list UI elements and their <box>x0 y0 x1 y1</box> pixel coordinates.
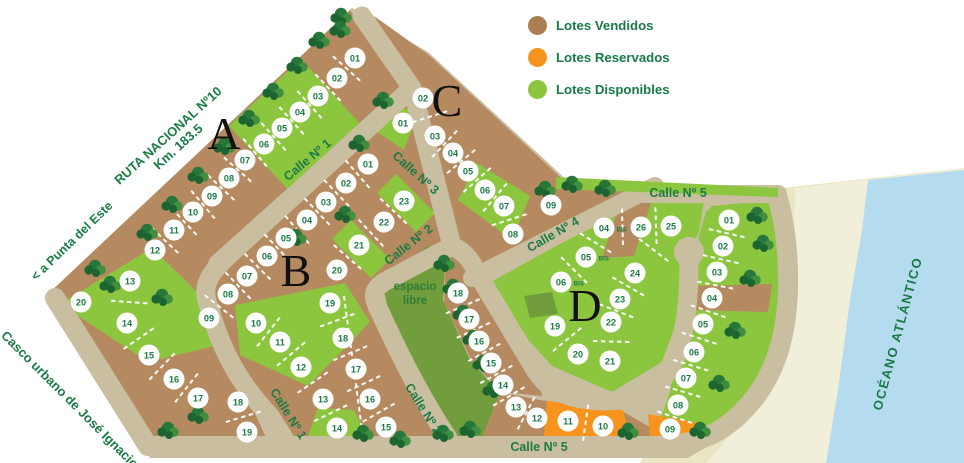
lot-c01[interactable]: 01 <box>393 113 414 134</box>
svg-text:09: 09 <box>665 424 675 434</box>
svg-text:05: 05 <box>277 123 287 133</box>
lot-a10[interactable]: 10 <box>183 202 204 223</box>
svg-text:09: 09 <box>207 191 217 201</box>
svg-text:06: 06 <box>480 185 490 195</box>
svg-text:05: 05 <box>581 252 591 262</box>
lot-do10[interactable]: 10 <box>593 416 614 437</box>
svg-text:11: 11 <box>563 416 573 426</box>
lot-c04[interactable]: 04 <box>443 143 464 164</box>
svg-text:06: 06 <box>689 347 699 357</box>
section-label-C: C <box>432 75 463 126</box>
svg-text:17: 17 <box>351 364 361 374</box>
lot-a14[interactable]: 14 <box>117 313 138 334</box>
svg-text:03: 03 <box>313 91 323 101</box>
lot-d19[interactable]: 19 <box>545 316 566 337</box>
svg-text:26: 26 <box>636 222 646 232</box>
svg-text:17: 17 <box>464 314 474 324</box>
svg-text:03: 03 <box>712 267 722 277</box>
lot-b17[interactable]: 17 <box>346 359 367 380</box>
lot-ds17[interactable]: 17 <box>459 309 480 330</box>
lot-c05[interactable]: 05 <box>458 161 479 182</box>
reservados-color-swatch <box>528 48 547 67</box>
svg-text:06: 06 <box>259 139 269 149</box>
lot-c07[interactable]: 07 <box>494 196 515 217</box>
svg-text:21: 21 <box>605 356 615 366</box>
svg-text:04: 04 <box>707 293 718 303</box>
lot-a18[interactable]: 18 <box>228 392 249 413</box>
svg-text:07: 07 <box>242 271 252 281</box>
espacio-libre-label: espacio <box>394 281 437 293</box>
lot-dr07[interactable]: 07 <box>676 368 697 389</box>
disponibles-color-swatch <box>528 80 547 99</box>
svg-text:01: 01 <box>350 53 360 63</box>
svg-text:12: 12 <box>532 413 542 423</box>
lot-ds18[interactable]: 18 <box>448 283 469 304</box>
svg-text:15: 15 <box>486 358 496 368</box>
svg-text:23: 23 <box>399 196 409 206</box>
lot-ds16[interactable]: 16 <box>469 331 490 352</box>
lot-d25[interactable]: 25 <box>661 216 682 237</box>
svg-text:02: 02 <box>718 241 728 251</box>
svg-text:01: 01 <box>724 215 734 225</box>
legend-item-disponibles: Lotes Disponibles <box>528 80 670 99</box>
lot-ds14[interactable]: 14 <box>493 375 514 396</box>
svg-text:17: 17 <box>193 393 203 403</box>
lot-d21[interactable]: 21 <box>600 351 621 372</box>
svg-text:18: 18 <box>453 288 463 298</box>
lot-dr02[interactable]: 02 <box>713 236 734 257</box>
svg-text:03: 03 <box>321 197 331 207</box>
lot-dr03[interactable]: 03 <box>707 262 728 283</box>
svg-text:04: 04 <box>599 223 610 233</box>
svg-text:02: 02 <box>418 93 428 103</box>
svg-text:05: 05 <box>281 233 291 243</box>
bis-suffix: BIS <box>599 256 609 263</box>
lot-ds15[interactable]: 15 <box>481 353 502 374</box>
svg-text:18: 18 <box>233 397 243 407</box>
svg-text:07: 07 <box>681 373 691 383</box>
lot-a08[interactable]: 08 <box>219 168 240 189</box>
svg-text:16: 16 <box>365 394 375 404</box>
lot-d22[interactable]: 22 <box>601 312 622 333</box>
lot-b11[interactable]: 11 <box>270 332 291 353</box>
svg-text:19: 19 <box>550 321 560 331</box>
lot-a03[interactable]: 03 <box>308 86 329 107</box>
lot-dr04[interactable]: 04 <box>702 288 723 309</box>
lot-a11[interactable]: 11 <box>164 220 185 241</box>
lot-c02[interactable]: 02 <box>413 88 434 109</box>
lot-d24[interactable]: 24 <box>625 263 646 284</box>
vendidos-label: Lotes Vendidos <box>556 18 653 33</box>
svg-text:25: 25 <box>666 221 676 231</box>
section-label-D: D <box>568 280 601 331</box>
lot-a05[interactable]: 05 <box>272 118 293 139</box>
svg-text:08: 08 <box>508 229 518 239</box>
lot-a17[interactable]: 17 <box>188 388 209 409</box>
reservados-label: Lotes Reservados <box>556 50 670 65</box>
svg-text:20: 20 <box>332 265 342 275</box>
espacio-libre-label: libre <box>403 295 427 307</box>
lot-b14[interactable]: 14 <box>327 418 348 439</box>
lot-b18[interactable]: 18 <box>333 328 354 349</box>
lot-b12[interactable]: 12 <box>291 357 312 378</box>
svg-text:12: 12 <box>150 245 160 255</box>
lot-d26[interactable]: 26 <box>631 217 652 238</box>
cul-de-sac <box>674 237 704 267</box>
svg-text:10: 10 <box>598 421 608 431</box>
lot-dr01[interactable]: 01 <box>719 210 740 231</box>
lot-b21[interactable]: 21 <box>349 235 370 256</box>
lot-a15[interactable]: 15 <box>139 345 160 366</box>
svg-text:20: 20 <box>76 297 86 307</box>
lot-ds12[interactable]: 12 <box>527 408 548 429</box>
lot-c06[interactable]: 06 <box>475 180 496 201</box>
svg-text:01: 01 <box>398 118 408 128</box>
svg-text:19: 19 <box>325 298 335 308</box>
svg-text:06: 06 <box>556 277 566 287</box>
svg-text:13: 13 <box>318 394 328 404</box>
section-label-B: B <box>281 245 312 296</box>
lot-a06[interactable]: 06 <box>254 134 275 155</box>
svg-text:01: 01 <box>363 159 373 169</box>
svg-text:07: 07 <box>499 201 509 211</box>
lot-c08[interactable]: 08 <box>503 224 524 245</box>
svg-text:08: 08 <box>224 173 234 183</box>
lot-a19[interactable]: 19 <box>237 422 258 443</box>
lot-b10[interactable]: 10 <box>246 313 267 334</box>
block-d-olive-square <box>524 292 558 318</box>
svg-text:09: 09 <box>204 313 214 323</box>
svg-text:04: 04 <box>295 107 306 117</box>
lot-d23[interactable]: 23 <box>610 289 631 310</box>
lot-b06[interactable]: 06 <box>257 246 278 267</box>
legend: Lotes Vendidos Lotes Reservados Lotes Di… <box>528 16 670 112</box>
lot-b16[interactable]: 16 <box>360 389 381 410</box>
svg-text:08: 08 <box>673 400 683 410</box>
svg-text:06: 06 <box>262 251 272 261</box>
lot-c03[interactable]: 03 <box>425 126 446 147</box>
svg-text:22: 22 <box>606 317 616 327</box>
svg-text:19: 19 <box>242 427 252 437</box>
lot-b23[interactable]: 23 <box>394 191 415 212</box>
svg-text:10: 10 <box>251 318 261 328</box>
svg-text:15: 15 <box>144 350 154 360</box>
svg-text:18: 18 <box>338 333 348 343</box>
svg-text:02: 02 <box>341 178 351 188</box>
lot-a09[interactable]: 09 <box>202 186 223 207</box>
street-label: Calle Nº 5 <box>510 440 567 454</box>
svg-text:16: 16 <box>474 336 484 346</box>
lot-a20[interactable]: 20 <box>71 292 92 313</box>
lot-b04[interactable]: 04 <box>297 210 318 231</box>
lot-b22[interactable]: 22 <box>374 212 395 233</box>
svg-text:02: 02 <box>332 73 342 83</box>
svg-text:09: 09 <box>546 200 556 210</box>
legend-item-vendidos: Lotes Vendidos <box>528 16 670 35</box>
lot-dr09[interactable]: 09 <box>660 419 681 440</box>
lot-d20[interactable]: 20 <box>568 344 589 365</box>
svg-text:21: 21 <box>354 240 364 250</box>
lot-b01[interactable]: 01 <box>358 154 379 175</box>
legend-item-reservados: Lotes Reservados <box>528 48 670 67</box>
svg-text:16: 16 <box>169 374 179 384</box>
svg-text:03: 03 <box>430 131 440 141</box>
lot-dr06[interactable]: 06 <box>684 342 705 363</box>
svg-text:14: 14 <box>122 318 133 328</box>
lot-a16[interactable]: 16 <box>164 369 185 390</box>
lot-dr08[interactable]: 08 <box>668 395 689 416</box>
svg-text:04: 04 <box>302 215 313 225</box>
lot-a04[interactable]: 04 <box>290 102 311 123</box>
svg-text:13: 13 <box>511 402 521 412</box>
svg-text:20: 20 <box>573 349 583 359</box>
lot-b02[interactable]: 02 <box>336 173 357 194</box>
vendidos-color-swatch <box>528 16 547 35</box>
lot-b07[interactable]: 07 <box>237 266 258 287</box>
bis-suffix: BIS <box>617 227 627 234</box>
svg-text:14: 14 <box>332 423 343 433</box>
svg-text:04: 04 <box>448 148 459 158</box>
svg-text:05: 05 <box>698 319 708 329</box>
lot-c09[interactable]: 09 <box>541 195 562 216</box>
site-map: 0102030405060708091011121314151617181920… <box>0 0 964 463</box>
svg-text:11: 11 <box>275 337 285 347</box>
lot-dr05[interactable]: 05 <box>693 314 714 335</box>
svg-text:07: 07 <box>240 155 250 165</box>
svg-text:14: 14 <box>498 380 509 390</box>
svg-text:13: 13 <box>125 276 135 286</box>
lot-b15[interactable]: 15 <box>376 417 397 438</box>
svg-text:15: 15 <box>381 422 391 432</box>
lot-b13[interactable]: 13 <box>313 389 334 410</box>
svg-text:22: 22 <box>379 217 389 227</box>
svg-text:24: 24 <box>630 268 641 278</box>
lot-do11[interactable]: 11 <box>558 411 579 432</box>
lot-b19[interactable]: 19 <box>320 293 341 314</box>
lot-a12[interactable]: 12 <box>145 240 166 261</box>
lot-b03[interactable]: 03 <box>316 192 337 213</box>
svg-text:10: 10 <box>188 207 198 217</box>
lot-a02[interactable]: 02 <box>327 68 348 89</box>
lot-b09[interactable]: 09 <box>199 308 220 329</box>
svg-text:12: 12 <box>296 362 306 372</box>
lot-b08[interactable]: 08 <box>218 284 239 305</box>
street-label: Calle Nº 5 <box>649 186 706 200</box>
lot-ds13[interactable]: 13 <box>506 397 527 418</box>
svg-text:05: 05 <box>463 166 473 176</box>
svg-text:08: 08 <box>223 289 233 299</box>
lot-b20[interactable]: 20 <box>327 260 348 281</box>
svg-text:23: 23 <box>615 294 625 304</box>
lot-a01[interactable]: 01 <box>345 48 366 69</box>
lot-a13[interactable]: 13 <box>120 271 141 292</box>
lot-map-page: 0102030405060708091011121314151617181920… <box>0 0 964 463</box>
disponibles-label: Lotes Disponibles <box>556 82 670 97</box>
svg-text:11: 11 <box>169 225 179 235</box>
